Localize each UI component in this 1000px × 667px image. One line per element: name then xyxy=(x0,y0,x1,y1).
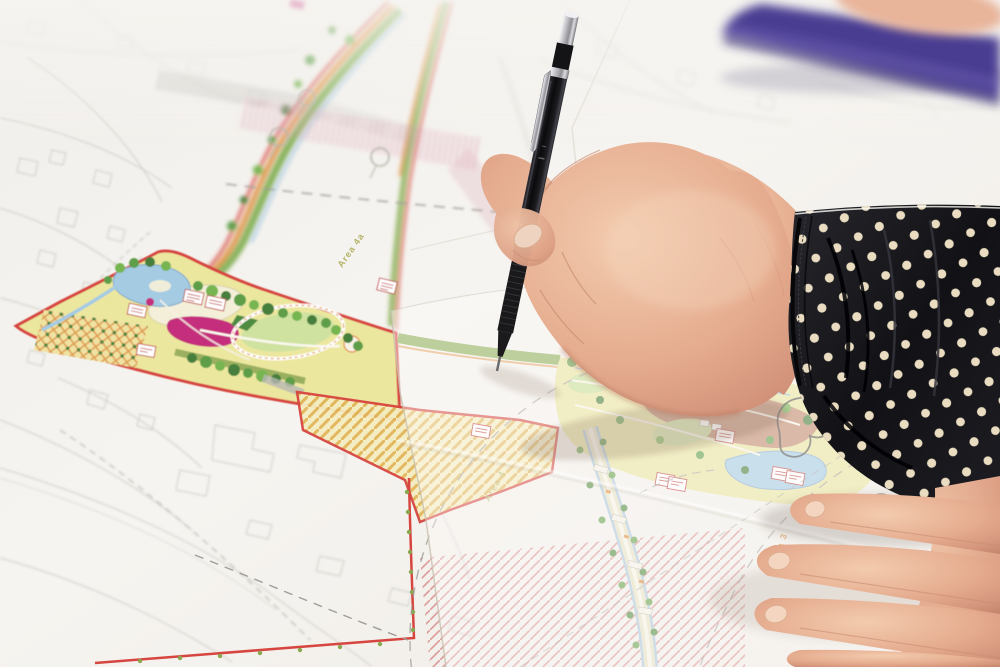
knuckle-highlight xyxy=(605,190,775,310)
photo-of-masterplan-drawing: Area 4a Area 4 Area 3 8 xyxy=(0,0,1000,667)
